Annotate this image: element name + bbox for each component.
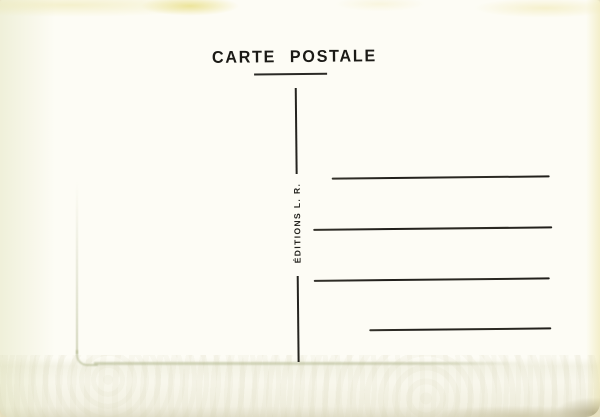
address-line-4	[369, 327, 551, 331]
center-divider-bottom	[297, 276, 300, 362]
address-line-3	[314, 277, 550, 281]
publisher-credit: ÉDITIONS L. R.	[292, 183, 303, 264]
postcard-back: CARTE POSTALE ÉDITIONS L. R.	[0, 0, 600, 417]
title-underline	[254, 73, 327, 75]
card-title: CARTE POSTALE	[212, 46, 377, 68]
center-divider-top	[295, 88, 298, 174]
address-line-1	[332, 175, 550, 179]
postcard-scan: CARTE POSTALE ÉDITIONS L. R.	[0, 0, 600, 417]
printed-layout: CARTE POSTALE ÉDITIONS L. R.	[0, 0, 600, 417]
address-line-2	[313, 226, 552, 231]
